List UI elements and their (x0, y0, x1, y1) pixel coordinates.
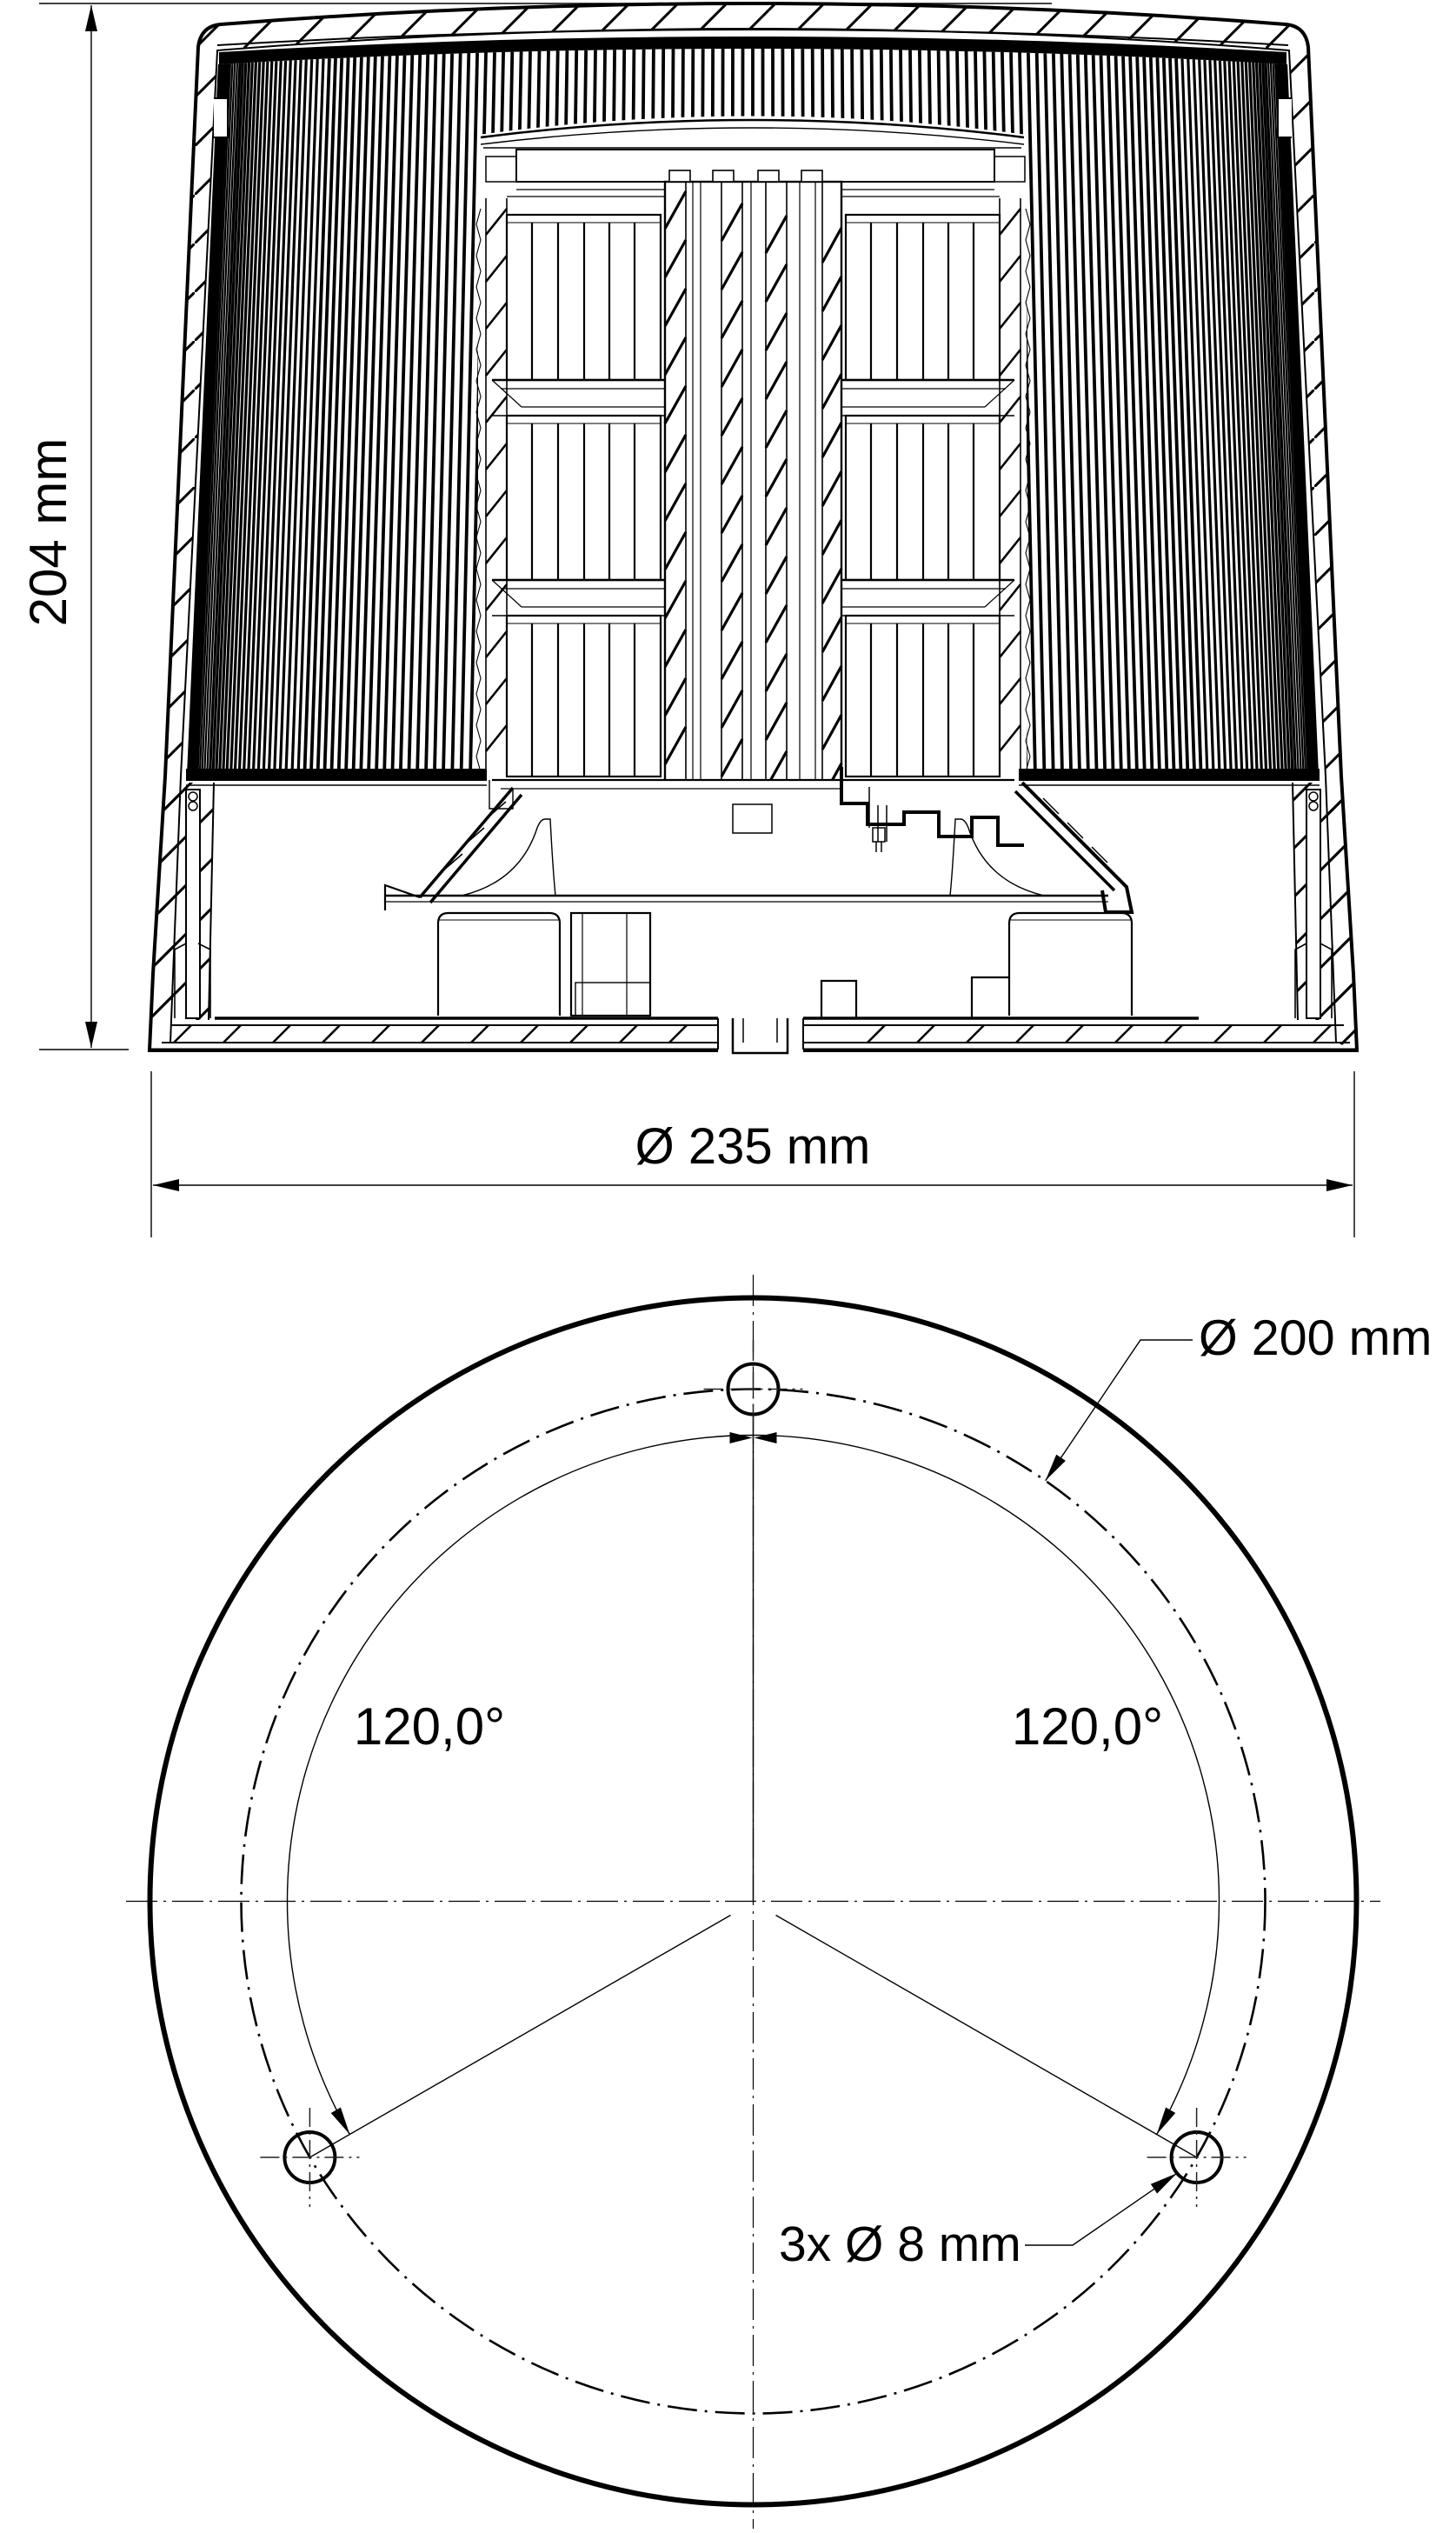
svg-text:204 mm: 204 mm (19, 438, 77, 627)
svg-text:Ø 200 mm: Ø 200 mm (1199, 1310, 1432, 1366)
svg-text:3x Ø 8 mm: 3x Ø 8 mm (779, 2216, 1021, 2272)
svg-text:Ø 235 mm: Ø 235 mm (635, 1118, 871, 1175)
svg-text:120,0°: 120,0° (1012, 1697, 1163, 1756)
svg-text:120,0°: 120,0° (354, 1697, 505, 1756)
